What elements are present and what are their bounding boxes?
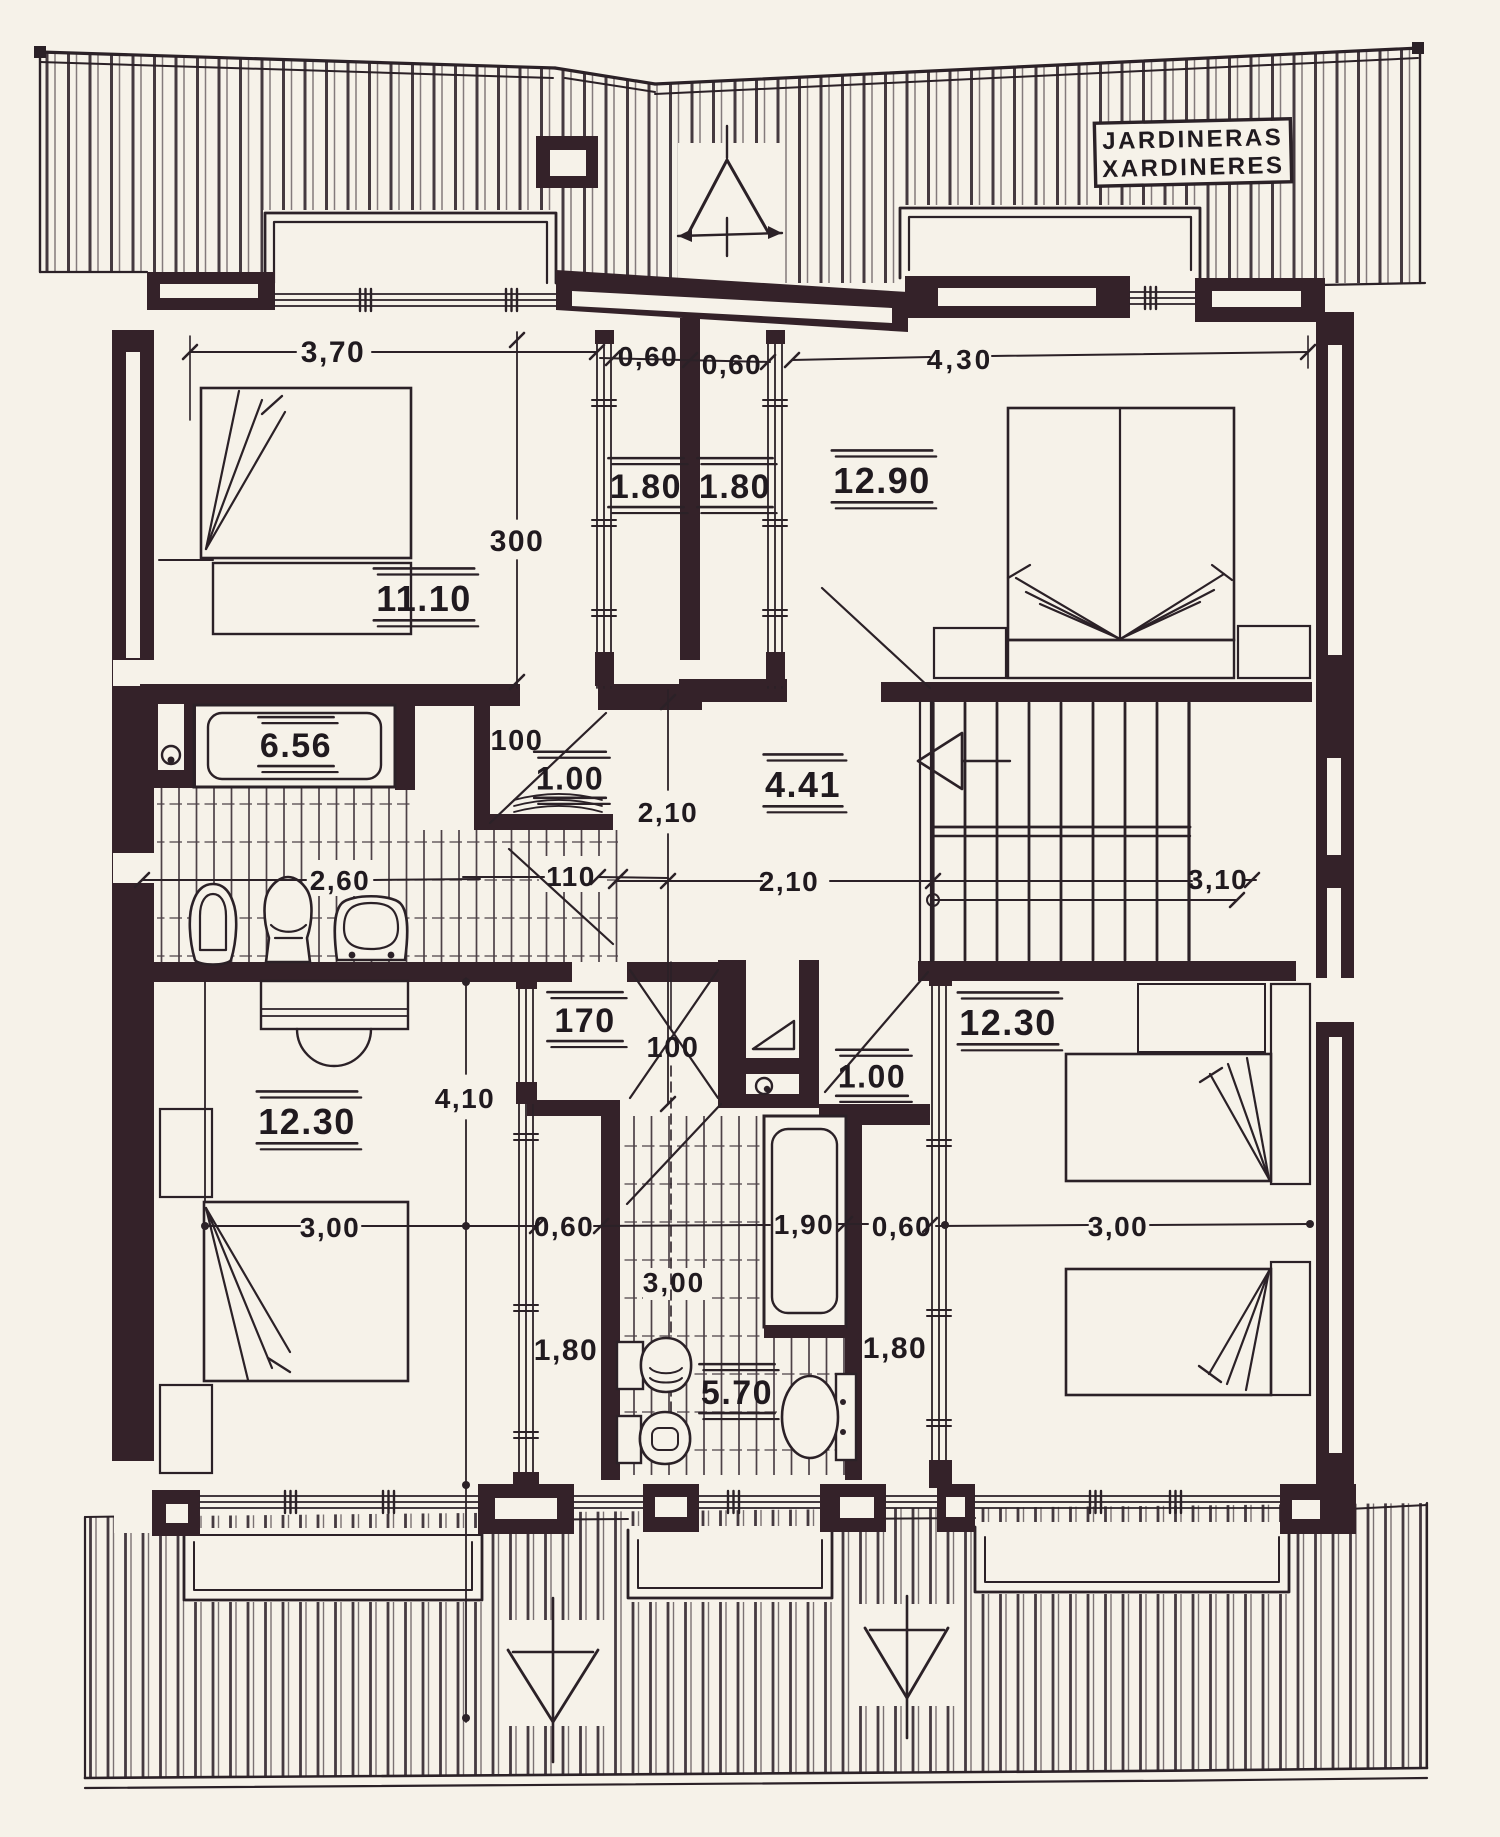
svg-text:0,60: 0,60 xyxy=(618,341,679,372)
svg-text:3,10: 3,10 xyxy=(1188,864,1249,895)
svg-text:300: 300 xyxy=(490,525,545,558)
svg-text:3,00: 3,00 xyxy=(643,1267,706,1298)
svg-text:4,10: 4,10 xyxy=(435,1083,496,1114)
svg-text:XARDINERES: XARDINERES xyxy=(1102,152,1285,183)
svg-text:110: 110 xyxy=(546,861,596,892)
svg-text:0,60: 0,60 xyxy=(872,1211,933,1242)
svg-text:170: 170 xyxy=(554,1002,615,1040)
svg-text:1.00: 1.00 xyxy=(838,1059,906,1095)
svg-text:5.70: 5.70 xyxy=(701,1374,773,1412)
svg-text:6.56: 6.56 xyxy=(260,727,332,765)
svg-text:0,60: 0,60 xyxy=(702,349,763,380)
svg-text:100: 100 xyxy=(647,1032,700,1064)
svg-text:1.80: 1.80 xyxy=(699,468,771,506)
svg-text:3,70: 3,70 xyxy=(301,336,365,369)
svg-text:1,80: 1,80 xyxy=(863,1332,927,1365)
svg-text:1.80: 1.80 xyxy=(610,468,682,506)
svg-text:0,60: 0,60 xyxy=(534,1211,595,1242)
svg-text:3,00: 3,00 xyxy=(300,1212,361,1243)
svg-text:12.90: 12.90 xyxy=(833,460,931,501)
svg-text:11.10: 11.10 xyxy=(376,578,472,619)
svg-text:2,10: 2,10 xyxy=(759,866,820,897)
svg-text:12.30: 12.30 xyxy=(959,1002,1057,1043)
svg-text:3,00: 3,00 xyxy=(1088,1211,1149,1242)
svg-text:1.00: 1.00 xyxy=(536,761,604,797)
svg-text:2,10: 2,10 xyxy=(638,797,699,828)
svg-text:1,90: 1,90 xyxy=(774,1209,835,1240)
svg-text:JARDINERAS: JARDINERAS xyxy=(1102,124,1284,155)
svg-text:2,60: 2,60 xyxy=(310,865,371,896)
svg-text:4.41: 4.41 xyxy=(765,764,841,805)
svg-text:4,30: 4,30 xyxy=(927,344,994,375)
svg-text:1,80: 1,80 xyxy=(534,1334,598,1367)
svg-text:12.30: 12.30 xyxy=(258,1101,356,1142)
